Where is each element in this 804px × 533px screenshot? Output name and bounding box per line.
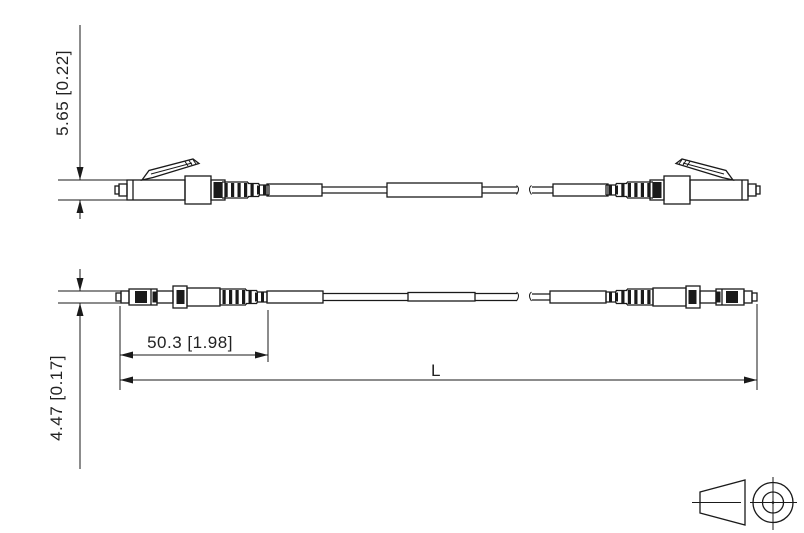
arrowhead-icon — [744, 377, 757, 384]
cable-break-icon — [530, 292, 532, 301]
third-angle-projection-icon — [692, 477, 797, 530]
marker-sleeve — [408, 293, 475, 302]
right-connector-side-view — [553, 159, 760, 204]
top-view-assembly — [115, 159, 760, 204]
arrowhead-icon — [120, 377, 133, 384]
bottom-view-assembly — [116, 286, 757, 308]
arrowhead-icon — [77, 278, 84, 291]
arrowhead-icon — [255, 352, 268, 359]
dimension-label-connector-height: 5.65 [0.22] — [53, 50, 72, 136]
marker-sleeve — [387, 183, 482, 197]
dimension-connector-assembly-length: 50.3 [1.98] — [120, 306, 268, 390]
dimension-connector-height: 5.65 [0.22] — [53, 25, 127, 219]
dimension-label-connector-width: 4.47 [0.17] — [47, 355, 66, 441]
arrowhead-icon — [120, 352, 133, 359]
technical-drawing: 5.65 [0.22] 4.47 [0.17] 50.3 [1.98] L — [0, 0, 804, 533]
left-connector-side-view — [115, 159, 322, 204]
dimension-connector-width: 4.47 [0.17] — [47, 269, 121, 469]
cable-break-icon — [530, 186, 532, 195]
arrowhead-icon — [77, 167, 84, 180]
arrowhead-icon — [77, 303, 84, 316]
fiber-cable-bottom-view — [323, 292, 550, 301]
arrowhead-icon — [77, 200, 84, 213]
fiber-cable-top-view — [322, 183, 553, 197]
drawing-canvas: 5.65 [0.22] 4.47 [0.17] 50.3 [1.98] L — [0, 0, 804, 533]
dimension-label-overall-length: L — [431, 361, 441, 380]
right-connector-top-view — [550, 286, 757, 308]
left-connector-top-view — [116, 286, 323, 308]
dimension-label-connector-assembly-length: 50.3 [1.98] — [147, 333, 233, 352]
projection-center-dot — [772, 501, 775, 504]
